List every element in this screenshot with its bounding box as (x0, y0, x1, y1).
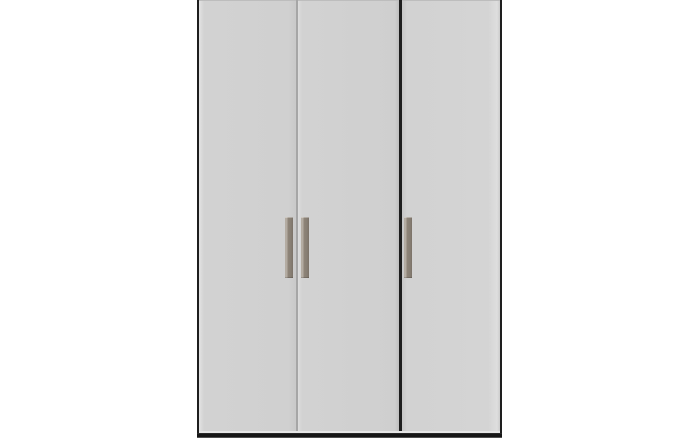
wardrobe-right-frame-edge (500, 0, 502, 433)
right-door-handle (404, 217, 412, 278)
middle-door-handle (301, 217, 309, 278)
left-door-handle (285, 217, 293, 278)
wardrobe-door-middle (298, 0, 399, 431)
wardrobe (197, 0, 502, 438)
wardrobe-door-right (402, 0, 500, 431)
wardrobe-base-plinth (197, 433, 502, 438)
wardrobe-door-left (199, 0, 296, 431)
product-image-canvas (0, 0, 700, 438)
